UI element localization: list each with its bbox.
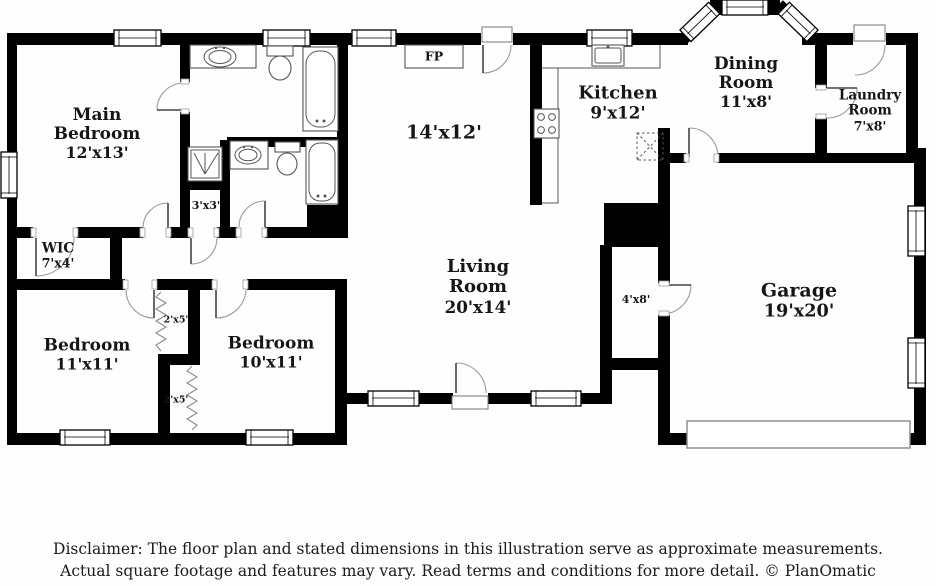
room-label-bedroom-10x11: Bedroom 10'x11': [201, 334, 341, 371]
room-label-living-room: Living Room 20'x14': [431, 257, 526, 317]
disclaimer: Disclaimer: The floor plan and stated di…: [0, 538, 936, 583]
room-label-kitchen: Kitchen 9'x12': [548, 83, 688, 122]
window: [587, 30, 632, 46]
room-label-garage: Garage 19'x20': [724, 280, 874, 321]
door-main-bedroom: [140, 203, 171, 237]
door-hall-bath: [236, 201, 267, 237]
window: [908, 338, 925, 388]
closet-label-2x5-upper: 2'x5': [154, 316, 198, 327]
window: [246, 430, 293, 445]
room-label-dining-room: Dining Room 11'x8': [701, 55, 791, 111]
door-back: [482, 27, 512, 73]
door-laundry-exterior: [854, 25, 885, 75]
toilet: [275, 142, 300, 175]
door-closet-3x3: [188, 228, 219, 264]
bathroom-vanity: [190, 45, 256, 68]
disclaimer-line-2: Actual square footage and features may v…: [0, 560, 936, 582]
disclaimer-line-1: Disclaimer: The floor plan and stated di…: [0, 538, 936, 560]
closet-label-3x3: 3'x3': [181, 200, 231, 212]
door-bedroom-10x11: [212, 280, 248, 318]
toilet: [267, 46, 293, 80]
closet-label-2x5-lower: 2'x5': [154, 396, 198, 407]
window: [60, 430, 110, 445]
closet-label-4x8: 4'x8': [611, 294, 661, 306]
window: [908, 206, 925, 256]
window: [1, 152, 17, 198]
room-label-main-bedroom: Main Bedroom 12'x13': [37, 106, 157, 162]
bathtub: [303, 47, 338, 131]
shower: [188, 147, 222, 181]
window: [722, 0, 768, 15]
window: [531, 391, 581, 406]
kitchen-counter: [542, 45, 660, 203]
bathtub: [306, 140, 338, 204]
bathroom-vanity: [230, 141, 268, 169]
door-bedroom-11x11: [123, 280, 157, 318]
room-label-laundry-room: Laundry Room 7'x8': [830, 89, 910, 134]
window: [263, 30, 310, 46]
room-label-bedroom-11x11: Bedroom 11'x11': [17, 336, 157, 373]
bay-window-right-diagonal: [774, 0, 823, 46]
door-ensuite-bath: [157, 79, 189, 114]
window: [114, 30, 161, 46]
garage-door: [687, 421, 910, 448]
door-garage-closet: [659, 281, 691, 316]
room-label-14x12: 14'x12': [389, 122, 499, 143]
door-garage-entry: [684, 128, 719, 162]
kitchen-sink: [592, 45, 624, 66]
window: [368, 391, 419, 406]
bay-window-left-diagonal: [676, 0, 725, 46]
floor-plan-page: Main Bedroom 12'x13' WIC 7'x4' Bedroom 1…: [0, 0, 936, 586]
room-label-wic: WIC 7'x4': [23, 241, 93, 270]
window: [352, 30, 396, 46]
door-front-entry: [452, 363, 488, 409]
fireplace-label: FP: [425, 49, 443, 64]
